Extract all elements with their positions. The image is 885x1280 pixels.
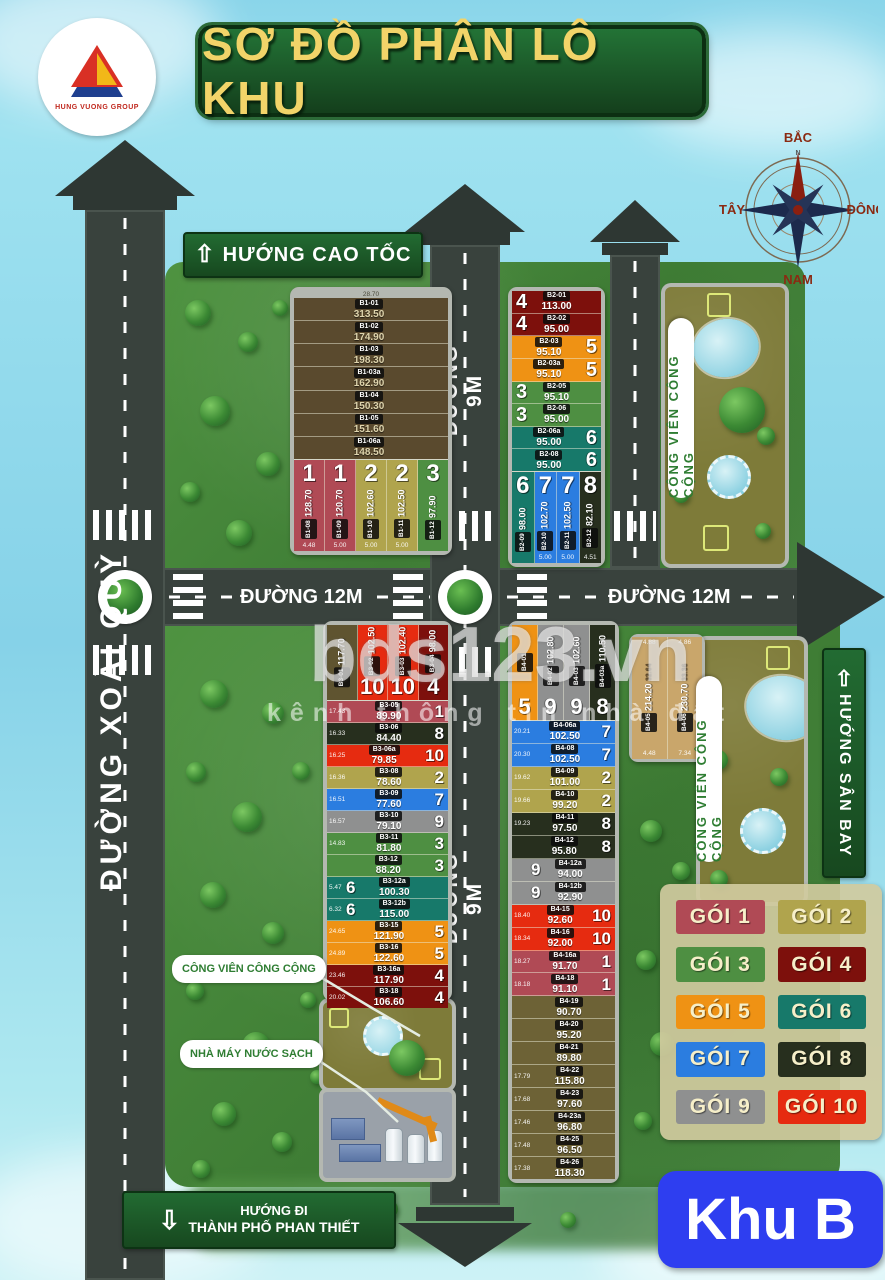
lot-id: B3-12b: [379, 899, 410, 909]
legend-item-goi-9: GÓI 9: [676, 1090, 765, 1124]
lot-id: B3-15: [375, 921, 402, 931]
lot-info: B4-22115.80: [530, 1066, 609, 1087]
lot-id: B4-21: [555, 1043, 582, 1053]
legend-item-goi-1: GÓI 1: [676, 900, 765, 934]
lot-area: 82.10: [585, 504, 596, 527]
lot-dim: 18.18: [514, 981, 530, 988]
block-B1: 28.70 B1-01313.50B1-02174.90B1-03198.30B…: [290, 287, 452, 555]
lot-info: B2-11102.50: [560, 498, 576, 554]
city-direction-sign: ⇩ HƯỚNG ĐI THÀNH PHỐ PHAN THIẾT: [122, 1191, 396, 1249]
lot-B3-12b: 6.326B3-12b115.00: [327, 899, 448, 921]
legend-item-goi-5: GÓI 5: [676, 995, 765, 1029]
lot-B3-01: B3-01117.70: [327, 625, 358, 700]
lot-id: B4-11: [552, 813, 579, 823]
tree: [719, 387, 765, 433]
water-plant-building: [331, 1118, 365, 1140]
lot-B3-02: B3-02102.5010: [358, 625, 389, 700]
lot-area: 120.70: [335, 489, 346, 517]
crosswalk: [614, 511, 656, 541]
lot-area: 96.80: [557, 1122, 582, 1133]
lot-area: 102.80: [545, 637, 556, 665]
lot-area: 98.00: [517, 507, 528, 530]
lot-area: 106.60: [374, 997, 405, 1008]
legend-item-goi-6: GÓI 6: [778, 995, 867, 1029]
lot-info: B3-0589.90: [345, 701, 432, 722]
package-number: 10: [358, 676, 386, 698]
lot-info: B4-03a110.50: [595, 627, 611, 696]
lot-B1-10: 2B1-10102.605.00: [356, 460, 387, 551]
legend-item-goi-10: GÓI 10: [778, 1090, 867, 1124]
tree: [672, 862, 690, 880]
zone-badge: Khu B: [658, 1171, 883, 1268]
tree: [238, 332, 258, 352]
lot-B4-05: 4.88B4-05214.2032.644.48: [632, 637, 668, 759]
lot-info: B3-03102.40: [395, 627, 411, 676]
arrow-north-left: [55, 140, 195, 196]
lot-area: 151.60: [354, 424, 385, 435]
airport-sign-label: HƯỚNG SÂN BAY: [835, 694, 853, 857]
lot-dim: 16.25: [329, 752, 345, 759]
lot-B3-18: 20.02B3-18106.604: [327, 987, 448, 1008]
lot-B3-04: B3-0498.004: [419, 625, 449, 700]
lot-dim-bottom: 5.00: [396, 542, 409, 549]
tree: [186, 982, 204, 1000]
lot-B1-02: B1-02174.90: [294, 321, 448, 344]
lot-area: 115.80: [555, 1076, 585, 1087]
lot-id: B3-16a: [373, 965, 404, 975]
lot-id: B2-05: [543, 382, 570, 392]
road-right-top: [610, 255, 660, 568]
lot-id: B4-02: [543, 666, 559, 686]
tree: [200, 396, 230, 426]
package-number: 7: [433, 791, 446, 808]
highway-sign-label: HƯỚNG CAO TỐC: [223, 244, 412, 267]
lot-info: B3-0498.00: [425, 627, 441, 676]
lot-B2-02: 4B2-0295.00: [512, 314, 601, 337]
road-label-12m-right: ĐƯỜNG 12M: [600, 586, 739, 609]
lot-B4-16: 18.34B4-1692.0010: [512, 928, 615, 951]
water-tank: [407, 1134, 425, 1164]
lot-id: B4-19: [555, 997, 582, 1007]
park-plot-marker: [329, 1008, 349, 1028]
lot-info: B1-09120.70: [332, 486, 348, 542]
lot-info: B2-0695.00: [529, 404, 584, 425]
lot-B4-11: 19.23B4-1197.508: [512, 813, 615, 836]
water-plant-callout-label: NHÀ MÁY NƯỚC SẠCH: [180, 1040, 323, 1068]
package-number: 5: [584, 337, 599, 357]
city-sign-line2: THÀNH PHỐ PHAN THIẾT: [188, 1219, 359, 1237]
lot-info: B4-1197.50: [530, 813, 599, 834]
lot-dim-bottom: 4.51: [584, 554, 597, 561]
lot-info: B3-15121.90: [345, 921, 432, 942]
plot-map-canvas: ĐƯỜNG 12M ĐƯỜNG 12M ĐƯỜNG XOÀI QUỲ ĐƯỜNG…: [0, 0, 885, 1280]
lot-dim-bottom: 7.34: [678, 750, 691, 757]
lot-id: B4-16: [547, 928, 574, 938]
legend-item-goi-8: GÓI 8: [778, 1042, 867, 1076]
road-label-12m-left: ĐƯỜNG 12M: [232, 586, 371, 609]
lot-id: B4-12a: [555, 859, 586, 869]
lot-dim-bottom: 5.00: [365, 542, 378, 549]
lot-id: B1-06a: [354, 437, 385, 447]
lot-id: B3-05: [375, 701, 402, 711]
lot-B3-16: 24.89B3-16122.605: [327, 943, 448, 965]
lot-B4-09: 19.62B4-09101.002: [512, 767, 615, 790]
lot-B2-08: B2-0895.006: [512, 449, 601, 471]
package-number: 6: [344, 879, 357, 896]
lot-B3-09: 16.51B3-0977.607: [327, 789, 448, 811]
lot-id: B4-12: [551, 836, 578, 846]
lot-id: B2-08: [535, 450, 562, 460]
lot-B1-01: B1-01313.50: [294, 298, 448, 321]
package-number: 1: [433, 703, 446, 720]
airport-direction-sign: ⇧ HƯỚNG SÂN BAY: [822, 648, 866, 878]
lot-id: B4-26: [556, 1158, 583, 1168]
lot-info: B4-1891.10: [530, 974, 599, 995]
lot-B4-25: 17.48B4-2596.50: [512, 1134, 615, 1157]
page-title: SƠ ĐỒ PHÂN LÔ KHU: [202, 17, 702, 125]
lot-area: 128.70: [304, 489, 315, 517]
lot-area: 95.00: [544, 324, 569, 335]
pond: [741, 670, 804, 746]
lot-id: B1-01: [355, 299, 382, 309]
lot-area: 97.90: [428, 495, 439, 518]
park-lower-label: CÔNG VIÊN CÔNG CỘNG: [696, 676, 722, 862]
lot-info: B4-1295.80: [529, 836, 600, 857]
lot-dim: 18.27: [514, 958, 530, 965]
lot-dim: 16.51: [329, 796, 345, 803]
package-number: 9: [542, 696, 558, 718]
lot-dim: 19.62: [514, 774, 530, 781]
tree: [262, 922, 284, 944]
lot-info: B4-2095.20: [529, 1020, 609, 1041]
lot-info: B1-01313.50: [296, 299, 442, 320]
lot-info: B4-12a94.00: [542, 859, 598, 880]
lot-dim: 17.46: [514, 1119, 530, 1126]
arrow-up-icon: ⇧: [195, 243, 215, 267]
lot-info: B4-2189.80: [529, 1043, 609, 1064]
lot-id: B2-10: [537, 531, 553, 551]
lot-info: B4-23a96.80: [530, 1112, 609, 1133]
tree: [389, 1040, 425, 1076]
tree: [272, 300, 288, 316]
lot-B4-21: B4-2189.80: [512, 1042, 615, 1065]
lot-area: 95.20: [556, 1030, 581, 1041]
lot-area: 81.80: [376, 843, 401, 854]
lot-info: B3-1079.10: [345, 811, 432, 832]
lot-B2-10: 7B2-10102.705.00: [535, 472, 558, 563]
tree: [560, 1212, 576, 1228]
lot-B4-15: 18.40B4-1592.6010: [512, 905, 615, 928]
lot-area: 102.50: [367, 627, 378, 655]
lot-side-dim: 33.36: [679, 664, 690, 682]
lot-id: B3-02: [364, 657, 380, 677]
lot-id: B4-03: [569, 666, 585, 686]
road-label-xoai-quy: ĐƯỜNG XOÀI QUỲ: [95, 480, 157, 960]
lot-info: B1-08128.70: [301, 486, 317, 542]
water-plant-building: [339, 1144, 381, 1162]
compass-east-label: ĐÔNG: [847, 202, 879, 217]
logo-text: HUNG VUONG GROUP: [55, 104, 139, 111]
package-number: 3: [424, 462, 441, 486]
arrow-up-icon: ⇧: [835, 668, 853, 690]
lot-area: 79.10: [376, 821, 401, 832]
package-number: 8: [433, 725, 446, 742]
lot-B4-12a: 9B4-12a94.00: [512, 859, 615, 882]
lot-dim: 16.57: [329, 818, 345, 825]
lot-B3-03: B3-03102.4010: [388, 625, 419, 700]
lot-area: 95.00: [536, 460, 561, 471]
lot-id: B3-04: [425, 654, 441, 674]
lot-id: B3-01: [334, 667, 350, 687]
lot-info: B2-1282.10: [582, 498, 598, 554]
lot-info: B4-1692.00: [530, 928, 590, 949]
lot-info: B4-1592.60: [530, 905, 590, 926]
lot-B2-06a: B2-06a95.006: [512, 427, 601, 450]
lot-id: B4-20: [555, 1020, 582, 1030]
company-logo: HUNG VUONG GROUP: [38, 18, 156, 136]
package-number: 10: [389, 676, 417, 698]
lot-id: B3-03: [395, 657, 411, 677]
lot-area: 94.00: [558, 869, 583, 880]
lot-area: 92.90: [558, 892, 583, 903]
lot-B4-16a: 18.27B4-16a91.701: [512, 951, 615, 974]
package-number: 8: [600, 838, 613, 855]
lot-dim-bottom: 5.00: [539, 554, 552, 561]
package-number: 6: [584, 428, 599, 448]
lot-area: 101.00: [550, 777, 581, 788]
lot-area: 92.60: [548, 915, 573, 926]
lot-id: B3-11: [376, 833, 403, 843]
lot-area: 121.90: [374, 931, 405, 942]
lot-area: 122.60: [374, 953, 405, 964]
lot-B1-12: 3B1-1297.90: [418, 460, 448, 551]
package-number: 9: [529, 884, 542, 901]
lot-B4-20: B4-2095.20: [512, 1019, 615, 1042]
package-number: 9: [529, 861, 542, 878]
package-number: 7: [600, 746, 613, 763]
lot-B2-06: 3B2-0695.00: [512, 404, 601, 427]
lot-B2-12: 8B2-1282.104.51: [580, 472, 602, 563]
lot-info: B2-06a95.00: [514, 427, 584, 448]
lot-id: B3-06a: [369, 745, 400, 755]
compass-rose: BẮC N NAM TÂY ĐÔNG: [718, 128, 878, 288]
block-B2: 4B2-01113.004B2-0295.00B2-0395.105B2-03a…: [508, 287, 605, 567]
lot-info: B1-02174.90: [296, 322, 442, 343]
lot-B1-08: 1B1-08128.704.48: [294, 460, 325, 551]
lot-area: 102.50: [550, 731, 581, 742]
lot-area: 162.90: [354, 378, 385, 389]
lot-area: 115.00: [379, 909, 409, 920]
lot-info: B1-06a148.50: [296, 437, 442, 458]
lot-B3-12: B3-1288.203: [327, 855, 448, 877]
package-number: 1: [331, 462, 348, 486]
lot-B1-03: B1-03198.30: [294, 344, 448, 367]
lot-info: B3-0684.40: [345, 723, 432, 744]
lot-info: B2-10102.70: [537, 498, 553, 554]
tree: [185, 300, 211, 326]
lot-info: B3-0977.60: [345, 789, 432, 810]
lot-info: B3-1181.80: [345, 833, 432, 854]
lot-info: B4-02102.80: [543, 627, 559, 696]
lot-id: B3-10: [375, 811, 402, 821]
package-number: 5: [516, 696, 532, 718]
lot-area: 198.30: [354, 355, 385, 366]
package-number: 3: [514, 382, 529, 402]
lot-area: 102.50: [397, 490, 408, 518]
lot-info: B1-11102.50: [394, 486, 410, 542]
lot-B2-11: 7B2-11102.505.00: [557, 472, 580, 563]
lot-area: 95.10: [536, 369, 561, 380]
lot-info: B2-0998.00: [515, 498, 531, 561]
package-number: 5: [433, 945, 446, 962]
tree: [226, 520, 252, 546]
lot-B1-09: 1B1-09120.705.00: [325, 460, 356, 551]
lot-area: 148.50: [354, 447, 385, 458]
lot-info: B3-1288.20: [344, 855, 433, 876]
park-top-label: CÔNG VIÊN CÔNG CỘNG: [668, 318, 694, 498]
lot-dim: 20.21: [514, 728, 530, 735]
lot-id: B3-06: [375, 723, 402, 733]
lot-B3-05: 17.43B3-0589.901: [327, 701, 448, 723]
lot-B3-10: 16.57B3-1079.109: [327, 811, 448, 833]
lot-dim: 16.36: [329, 774, 345, 781]
package-number: 3: [433, 835, 446, 852]
lot-area: 95.10: [536, 347, 561, 358]
lot-dim: 18.34: [514, 935, 530, 942]
package-number: 2: [433, 769, 446, 786]
lot-dim: 23.46: [329, 972, 345, 979]
tree: [256, 452, 280, 476]
lot-id: B3-12a: [379, 877, 410, 887]
lot-area: 117.90: [374, 975, 404, 986]
lot-B4-03a: B4-03a110.508: [590, 625, 615, 720]
lot-area: 92.00: [548, 938, 573, 949]
package-number: 6: [584, 450, 599, 470]
title-banner: SƠ ĐỒ PHÂN LÔ KHU: [198, 25, 706, 117]
lot-info: B4-2397.60: [530, 1089, 609, 1110]
compass-north-label: BẮC: [784, 130, 813, 145]
lot-info: B3-01117.70: [334, 627, 350, 698]
lot-info: B4-26118.30: [530, 1158, 609, 1179]
crosswalk: [173, 574, 203, 620]
package-number: 4: [425, 676, 441, 698]
package-number: 5: [584, 360, 599, 380]
lot-info: B4-16a91.70: [530, 951, 599, 972]
lot-info: B1-10102.60: [363, 486, 379, 542]
package-number: 3: [514, 405, 529, 425]
lot-area: 113.00: [542, 301, 572, 312]
lot-dim: 24.65: [329, 928, 345, 935]
package-number: 1: [600, 953, 613, 970]
lot-info: B1-03198.30: [296, 345, 442, 366]
lot-dim: 5.47: [329, 884, 344, 891]
lot-id: B1-05: [355, 414, 382, 424]
lot-B4-23a: 17.46B4-23a96.80: [512, 1111, 615, 1134]
lot-B4-02: B4-02102.809: [538, 625, 564, 720]
lot-info: B4-03102.60: [569, 627, 585, 696]
tree: [262, 702, 284, 724]
lot-B4-06a: 20.21B4-06a102.507: [512, 721, 615, 744]
tree: [180, 482, 200, 502]
lot-area: 89.80: [556, 1053, 581, 1064]
lot-info: B4-06230.7033.36: [677, 646, 693, 750]
lot-area: 102.50: [562, 502, 573, 530]
lot-area: 150.30: [354, 401, 385, 412]
package-number: 7: [537, 474, 554, 498]
lot-id: B1-08: [301, 519, 317, 539]
lot-B1-04: B1-04150.30: [294, 391, 448, 414]
arrow-north-right: [590, 200, 680, 242]
legend-item-goi-4: GÓI 4: [778, 947, 867, 981]
tree: [636, 950, 656, 970]
lot-id: B3-12: [375, 855, 402, 865]
lot-B3-12a: 5.476B3-12a100.30: [327, 877, 448, 899]
lot-B1-03a: B1-03a162.90: [294, 367, 448, 390]
lot-B4-12: B4-1295.808: [512, 836, 615, 859]
package-number: 10: [590, 930, 613, 947]
lot-id: B1-09: [332, 519, 348, 539]
package-number: 4: [514, 292, 529, 312]
lot-id: B3-08: [375, 767, 402, 777]
park-plot-marker: [766, 646, 790, 670]
lot-id: B1-04: [355, 391, 382, 401]
lot-info: B1-03a162.90: [296, 368, 442, 389]
lot-info: B1-04150.30: [296, 391, 442, 412]
lot-id: B3-18: [375, 987, 402, 997]
lot-B2-03: B2-0395.105: [512, 336, 601, 359]
package-number: 6: [514, 474, 531, 498]
block-B3: B3-01117.70B3-02102.5010B3-03102.4010B3-…: [323, 621, 452, 1001]
park-plot-marker: [703, 525, 729, 551]
lot-info: B4-1990.70: [529, 997, 609, 1018]
lot-dim: 17.38: [514, 1165, 530, 1172]
lot-id: B3-16: [375, 943, 402, 953]
lot-area: 95.10: [544, 392, 569, 403]
city-sign-line1: HƯỚNG ĐI: [240, 1203, 307, 1219]
package-number: 10: [423, 747, 446, 764]
lot-area: 102.70: [540, 501, 551, 529]
lot-area: 88.20: [376, 865, 401, 876]
lot-area: 95.80: [552, 846, 577, 857]
lot-info: B3-12b115.00: [357, 899, 431, 920]
lot-dim: 17.79: [514, 1073, 530, 1080]
lot-id: B4-23a: [554, 1112, 585, 1122]
lot-B4-22: 17.79B4-22115.80: [512, 1065, 615, 1088]
lot-id: B4-12b: [555, 882, 586, 892]
lot-id: B2-09: [515, 532, 531, 552]
lot-area: 102.60: [366, 489, 377, 517]
tree: [634, 1112, 652, 1130]
tree: [755, 523, 771, 539]
lot-info: B3-16122.60: [345, 943, 432, 964]
lot-area: 97.60: [557, 1099, 582, 1110]
package-number: 1: [600, 976, 613, 993]
lot-B1-06a: B1-06a148.50: [294, 437, 448, 459]
lot-info: B2-0595.10: [529, 382, 584, 403]
legend-item-goi-2: GÓI 2: [778, 900, 867, 934]
package-number: 10: [590, 907, 613, 924]
lot-id: B1-02: [355, 322, 382, 332]
lot-id: B1-03: [355, 345, 382, 355]
lot-B4-18: 18.18B4-1891.101: [512, 973, 615, 996]
lot-dim: 17.48: [514, 1142, 530, 1149]
lot-area: 97.50: [552, 823, 577, 834]
lot-area: 100.30: [379, 887, 410, 898]
arrow-east: [797, 542, 885, 652]
lot-area: 91.10: [552, 984, 577, 995]
lot-id: B1-11: [394, 519, 410, 538]
compass-n-letter: N: [795, 150, 800, 157]
